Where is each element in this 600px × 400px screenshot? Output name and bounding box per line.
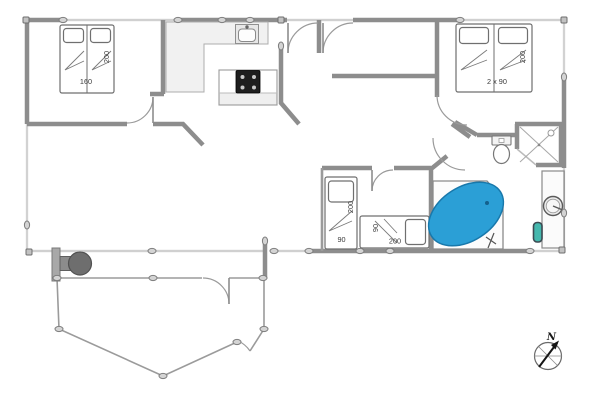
shower-drain-icon (538, 144, 541, 147)
pillow (91, 29, 111, 43)
bedroom2-twin-beds: 2 x 90 200 (456, 24, 532, 92)
kidsroom-bed-horizontal: 90 200 (360, 216, 429, 248)
wall-node-icon (278, 42, 283, 50)
bed-length-label: 200 (518, 51, 527, 63)
bed-width-label: 160 (80, 77, 92, 86)
pillow (329, 181, 354, 202)
water-heater-icon (534, 223, 543, 243)
bed-width-label: 90 (337, 235, 345, 244)
sink-faucet-icon (245, 25, 248, 28)
floor-plan: 160 200 2 x 90 200 200 90 90 200 (0, 0, 600, 400)
wall-node-icon (262, 237, 267, 245)
bed-length-label: 200 (346, 201, 355, 213)
wall-corner-icon (26, 249, 32, 255)
bed-width-label: 2 x 90 (487, 77, 507, 86)
compass-icon: N (534, 332, 562, 370)
wall-corner-icon (278, 17, 284, 23)
deck-post-icon (53, 275, 61, 280)
deck-post-icon (233, 339, 241, 344)
cooktop-icon (236, 71, 260, 94)
kidsroom-bed-vertical: 200 90 (325, 177, 357, 249)
kitchen-island-shelf (219, 93, 277, 105)
deck-post-icon (149, 275, 157, 280)
wall-node-icon (386, 248, 394, 253)
utility-unit (534, 171, 565, 248)
wall-node-icon (59, 17, 67, 22)
toilet-bowl (494, 145, 510, 164)
bed-width-label: 90 (371, 224, 380, 232)
burner-icon (252, 86, 256, 90)
deck-post-icon (260, 326, 268, 331)
wall-node-icon (356, 248, 364, 253)
burner-icon (241, 75, 245, 79)
wall-node-icon (24, 221, 29, 229)
floor-plan-page: 160 200 2 x 90 200 200 90 90 200 (0, 0, 600, 400)
stove-body-icon (69, 252, 92, 275)
wall-node-icon (218, 17, 226, 22)
shower-symbol (517, 127, 558, 165)
wall-corner-icon (559, 247, 565, 253)
pillow (64, 29, 84, 43)
deck-post-icon (55, 326, 63, 331)
wall-node-icon (561, 209, 566, 217)
kitchen (166, 22, 277, 105)
deck-post-icon (259, 275, 267, 280)
wall-node-icon (174, 17, 182, 22)
wall-node-icon (148, 248, 156, 253)
burner-icon (241, 86, 245, 90)
spa-drain-icon (485, 201, 489, 205)
terrace-outline (57, 278, 264, 376)
wall-corner-icon (23, 17, 29, 23)
shower-head-icon (548, 130, 554, 136)
toilet-symbol (492, 136, 511, 164)
wall-node-icon (270, 248, 278, 253)
wall-node-icon (246, 17, 254, 22)
burner-icon (252, 75, 256, 79)
pillow (460, 28, 489, 44)
bed-length-label: 200 (102, 51, 111, 63)
pillow (499, 28, 528, 44)
bed-length-label: 200 (389, 237, 401, 246)
deck-post-icon (159, 373, 167, 378)
sink-bowl (239, 29, 256, 42)
wall-node-icon (305, 248, 313, 253)
bedroom1-double-bed: 160 200 (60, 25, 114, 93)
wall-node-icon (561, 73, 566, 81)
north-label: N (546, 332, 557, 343)
pillow (406, 220, 426, 245)
shower-entry-edge (517, 149, 536, 165)
wall-corner-icon (561, 17, 567, 23)
wall-node-icon (456, 17, 464, 22)
bathroom (417, 127, 564, 259)
toilet-button (499, 139, 504, 143)
wall-node-icon (526, 248, 534, 253)
